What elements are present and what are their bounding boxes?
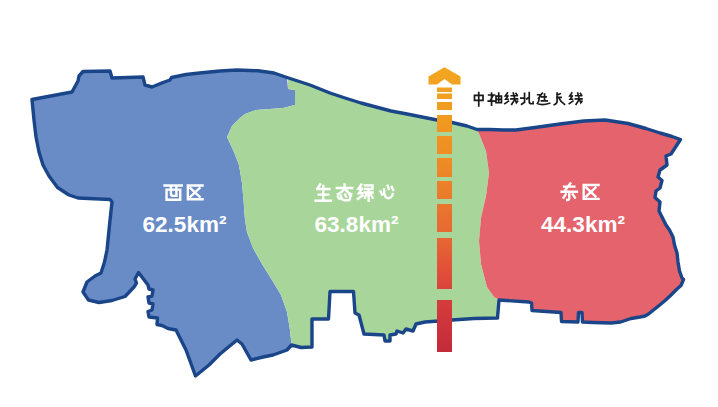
svg-text:63.8km²: 63.8km² xyxy=(315,212,399,237)
svg-text:44.3km²: 44.3km² xyxy=(541,212,625,237)
svg-text:62.5km²: 62.5km² xyxy=(143,212,227,237)
